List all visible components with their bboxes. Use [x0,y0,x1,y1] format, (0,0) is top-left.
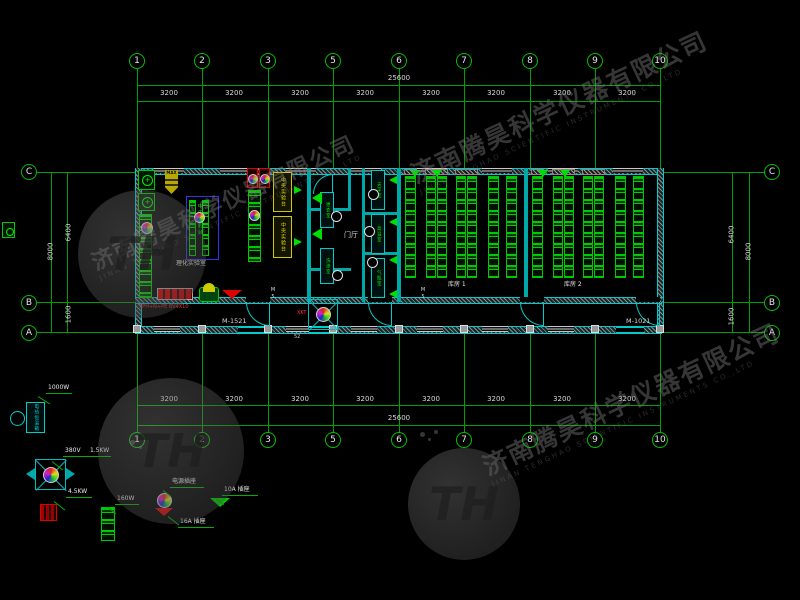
door-tag: M5 [270,287,275,301]
dim-bay: 3200 [286,90,314,97]
vent-wedge-icon [312,228,322,240]
grid-line [202,69,203,168]
dim-bay: 3200 [548,396,576,403]
grid-bubble-bottom: 5 [325,432,341,448]
grid-bubble-right: B [764,295,780,311]
grid-bubble-top: 1 [129,53,145,69]
dim-line [137,101,660,102]
grid-line [268,69,269,168]
eyewash-symbol: + [138,170,155,190]
bench-strip [202,200,209,256]
grid-bubble-top: 3 [260,53,276,69]
dim-bay: 3200 [220,90,248,97]
legend-fan-sphere [43,467,59,483]
exterior-door-opening [238,327,266,333]
grid-bubble-top: 2 [194,53,210,69]
watermark-logo: TH [408,448,520,560]
grid-line [595,331,596,432]
storage-rack [467,176,477,278]
door-swing [313,174,333,194]
door-circle [367,257,378,268]
grid-line [595,69,596,168]
equipment-sphere [249,210,260,221]
equipment-sphere [194,212,205,223]
side-bench [248,190,261,262]
dim-bay: 3200 [548,90,576,97]
door-swing [246,302,270,326]
legend-fan-power: 1.5KW [90,448,109,454]
window [351,326,377,332]
partition-wall [307,168,311,302]
room-label-storage2: 库房 2 [564,282,582,288]
grid-bubble-bottom: 8 [522,432,538,448]
storage-rack [506,176,517,278]
dim-line [137,85,660,86]
watermark-splash [130,440,135,445]
small-room-label: 洗涤室 [320,248,334,284]
watermark-splash [428,438,431,441]
vent-wedge-icon [389,218,397,226]
door-circle [368,189,379,200]
window [220,168,250,173]
legend-circle [10,411,25,426]
power-bench [157,288,193,300]
column-marker [395,325,403,333]
grid-line [37,332,135,333]
grid-bubble-right: C [764,164,780,180]
grid-line [464,69,465,168]
storage-rack [532,176,543,278]
grid-bubble-left: B [21,295,37,311]
mark: 52 [294,335,300,340]
storage-rack [437,176,447,278]
fan-tag: XKT [297,311,306,316]
grid-bubble-right: A [764,325,780,341]
storage-rack [583,176,593,278]
dim-right-lower: 1600 [729,301,736,333]
rack-cap [455,169,478,175]
legend-oven: 电热恒温箱 [26,402,45,433]
cad-floor-plan: 济南腾昊科学仪器有限公司 JINAN TENGHAO SCIENTIFIC IN… [0,0,800,600]
storage-rack [488,176,499,278]
equipment-sphere [248,174,258,184]
rack-cap [582,169,605,175]
grid-bubble-top: 5 [325,53,341,69]
grid-line [660,331,661,432]
dim-bay: 3200 [417,90,445,97]
power-note: 3PH+N+PE BV4X10 [139,305,189,310]
dim-bay: 3200 [220,396,248,403]
grid-bubble-left: A [21,325,37,341]
watermark-splash [420,432,425,437]
storage-rack [553,176,563,278]
dim-bay: 3200 [155,396,183,403]
column-marker [133,325,141,333]
watermark-splash [139,446,142,449]
grid-line [202,331,203,432]
grid-line [137,331,138,432]
window [417,326,443,332]
flag-symbol: MAX [165,170,178,194]
dim-left-upper: 6400 [66,217,73,249]
dim-bay: 3200 [613,396,641,403]
grid-bubble-bottom: 6 [391,432,407,448]
window [613,168,643,173]
storage-rack [456,176,466,278]
door-swing [368,302,392,326]
storage-rack [633,176,644,278]
storage-rack [594,176,604,278]
bench-strip [189,200,196,256]
grid-bubble-top: 7 [456,53,472,69]
window [548,326,574,332]
door-swing [520,302,544,326]
dim-bay: 3200 [286,396,314,403]
storage-rack [426,176,436,278]
grid-bubble-top: 9 [587,53,603,69]
legend-socket-16a: 16A 插座 [180,519,206,525]
dim-bay: 3200 [351,90,379,97]
dim-line [137,425,660,426]
grid-bubble-top: 10 [652,53,668,69]
room-label-storage1: 库房 1 [448,282,466,288]
small-symbol-box [2,222,15,238]
column-marker [591,325,599,333]
dim-right-upper: 6400 [729,219,736,251]
dim-total-top: 25600 [379,75,419,82]
partition-wall [524,168,528,302]
fan-wing-icon [26,468,35,480]
legend-oven-power: 1000W [48,385,69,391]
grid-line [530,331,531,432]
door-circle [332,270,343,281]
column-marker [656,325,664,333]
vent-wedge-icon [432,170,442,177]
sink-symbol: + [138,193,155,211]
grid-line [333,69,334,168]
grid-bubble-bottom: 2 [194,432,210,448]
dim-line [137,405,660,406]
dim-bay: 3200 [155,90,183,97]
vent-wedge-icon [389,256,397,264]
room-label-lab: 理化实验室 [176,261,206,267]
door-tag: M5 [420,287,425,301]
storage-rack [615,176,626,278]
grid-line [662,332,764,333]
grid-line [464,331,465,432]
grid-bubble-bottom: 7 [456,432,472,448]
window [482,326,508,332]
vent-wedge-icon [538,170,548,177]
equipment-sphere [260,174,270,184]
grid-bubble-bottom: 3 [260,432,276,448]
legend-heater [40,504,57,521]
grid-bubble-left: C [21,164,37,180]
door-circle [364,226,375,237]
equipment-sphere [141,222,153,234]
column-marker [460,325,468,333]
vent-wedge-icon [389,176,397,184]
grid-line [399,69,400,168]
vent-wedge-icon [294,186,302,194]
watermark-splash [434,430,438,434]
vent-wedge-icon [560,170,570,177]
door-code-left: M-1521 [222,318,247,325]
grid-bubble-top: 8 [522,53,538,69]
dim-bay: 3200 [417,396,445,403]
window [154,326,180,332]
column-marker [198,325,206,333]
wall-bench: 中央实验台 [273,216,292,258]
door-circle [331,211,342,222]
dim-bay: 3200 [351,396,379,403]
exterior-door-opening [616,327,644,333]
grid-bubble-top: 6 [391,53,407,69]
legend-rack-power: 160W [117,496,134,502]
vent-wedge-icon [389,290,397,298]
grid-line [660,69,661,168]
socket-triangle-icon [222,290,242,299]
dim-total-bottom: 25600 [379,415,419,422]
partition-wall [348,168,351,210]
column-marker [264,325,272,333]
partition-wall [397,168,401,302]
legend-heater-power: 4.5KW [68,489,87,495]
column-marker [526,325,534,333]
grid-bubble-bottom: 10 [652,432,668,448]
fan-wing-icon [66,468,75,480]
window [482,168,512,173]
wall-bench: 中央实验台 [273,172,292,212]
fan-sphere [316,307,331,322]
dim-left-total: 8000 [48,236,55,268]
vent-wedge-icon [294,238,302,246]
grid-line [530,69,531,168]
vent-wedge-icon [410,170,420,177]
dim-right-total: 8000 [746,236,753,268]
grid-bubble-bottom: 9 [587,432,603,448]
small-room-label: 更衣室 [320,192,334,228]
vent-wedge-icon [312,192,322,204]
dim-bay: 3200 [613,90,641,97]
storage-rack [405,176,416,278]
grid-line [137,69,138,168]
chair-symbol [203,283,215,292]
grid-line [333,331,334,432]
storage-rack [564,176,574,278]
legend-socket-16a-icon [155,508,173,516]
legend-fan-voltage: 380V [65,448,81,454]
dim-left-lower: 1600 [66,299,73,331]
grid-line [268,331,269,432]
dim-bay: 3200 [482,90,510,97]
door-code-right: M-1021 [626,318,651,325]
legend-socket-10a: 10A 插座 [224,487,250,493]
dim-bay: 3200 [482,396,510,403]
room-label-hall: 门厅 [344,232,358,239]
legend-socket-main: 电源插座 [172,479,196,485]
